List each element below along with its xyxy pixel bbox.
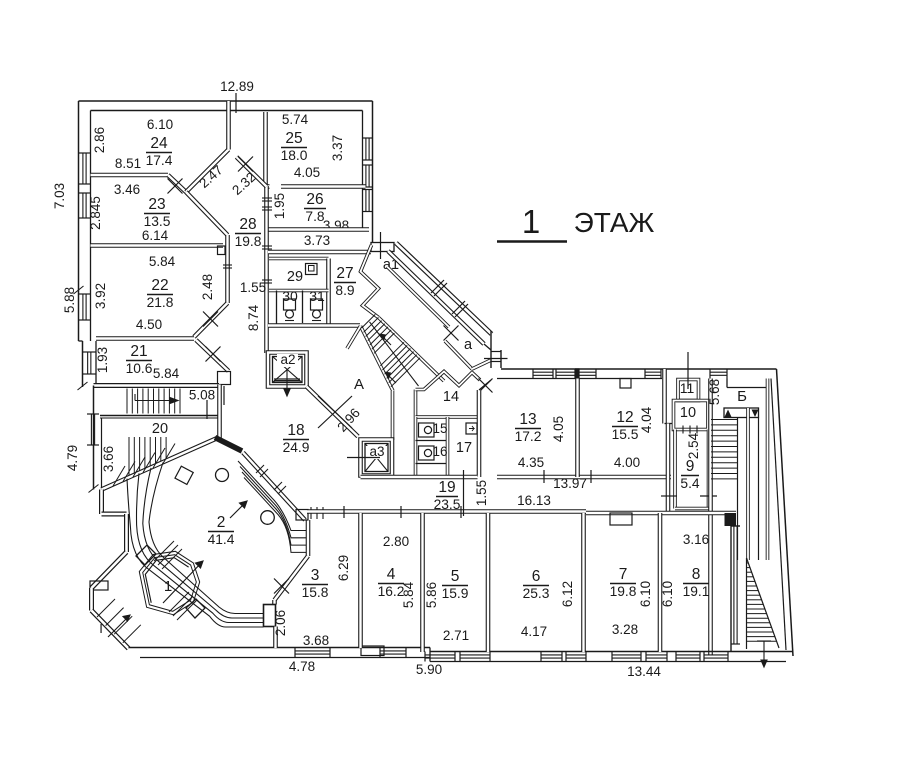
svg-text:5.74: 5.74 [282,112,309,127]
svg-text:3.46: 3.46 [114,182,140,197]
svg-text:5.84: 5.84 [153,366,180,381]
svg-text:18.0: 18.0 [281,148,308,163]
svg-text:4.00: 4.00 [614,455,640,470]
svg-text:4.05: 4.05 [294,165,320,180]
svg-text:13.44: 13.44 [627,664,661,679]
svg-text:28: 28 [239,216,256,233]
svg-text:17: 17 [456,440,472,456]
svg-text:4.17: 4.17 [521,624,547,639]
svg-text:1.55: 1.55 [240,280,266,295]
svg-text:8.74: 8.74 [246,304,261,331]
svg-text:3.92: 3.92 [93,283,108,309]
svg-text:17.4: 17.4 [146,153,173,168]
svg-text:26: 26 [306,191,323,208]
svg-text:15.8: 15.8 [302,585,329,600]
svg-text:13.97: 13.97 [553,476,587,491]
svg-text:9: 9 [686,458,695,475]
svg-text:30: 30 [282,288,298,304]
svg-text:25: 25 [285,130,302,147]
svg-text:6.10: 6.10 [147,117,173,132]
svg-text:2.80: 2.80 [383,534,409,549]
svg-text:2.86: 2.86 [92,127,107,153]
svg-text:31: 31 [309,288,325,304]
svg-text:15.5: 15.5 [612,427,639,442]
svg-text:10: 10 [680,405,696,421]
svg-text:17.2: 17.2 [515,429,542,444]
svg-text:а: а [464,337,473,353]
svg-text:3: 3 [311,567,320,584]
svg-text:6.10: 6.10 [660,581,675,607]
svg-text:10.6: 10.6 [126,361,153,376]
svg-text:19.1: 19.1 [683,584,710,599]
svg-text:19.8: 19.8 [235,234,262,249]
svg-text:11: 11 [680,380,695,396]
svg-text:2.06: 2.06 [273,610,288,636]
svg-text:21: 21 [130,343,147,360]
svg-text:15: 15 [432,421,447,436]
svg-text:18: 18 [287,422,304,439]
svg-text:13: 13 [519,411,536,428]
svg-text:1: 1 [522,203,540,240]
svg-text:19: 19 [438,479,455,496]
svg-text:7: 7 [619,566,628,583]
svg-text:ЭТАЖ: ЭТАЖ [574,207,655,238]
svg-text:8.51: 8.51 [115,156,141,171]
svg-text:6.14: 6.14 [142,228,169,243]
svg-text:21.8: 21.8 [147,295,174,310]
svg-text:15.9: 15.9 [442,586,469,601]
svg-text:4.35: 4.35 [518,455,544,470]
svg-text:6.10: 6.10 [638,581,653,607]
svg-text:4.04: 4.04 [639,406,654,433]
svg-text:5.86: 5.86 [424,582,439,608]
svg-text:8.9: 8.9 [335,283,355,298]
svg-text:2: 2 [217,514,226,531]
svg-text:3.73: 3.73 [304,233,330,248]
svg-text:3.16: 3.16 [683,532,709,547]
svg-text:6.29: 6.29 [336,555,351,581]
svg-text:5: 5 [451,568,460,585]
svg-text:6.12: 6.12 [560,581,575,607]
svg-text:13.5: 13.5 [144,214,171,229]
svg-text:А: А [354,376,364,393]
svg-text:5.84: 5.84 [149,254,176,269]
svg-text:Б: Б [737,388,747,405]
svg-text:6: 6 [532,568,541,585]
svg-text:41.4: 41.4 [208,532,235,547]
svg-text:1.95: 1.95 [272,193,287,219]
svg-text:4.79: 4.79 [65,445,80,471]
svg-text:5.4: 5.4 [680,476,700,491]
svg-text:4.78: 4.78 [289,659,315,674]
svg-text:5.08: 5.08 [189,388,215,403]
svg-text:12.89: 12.89 [220,79,254,94]
svg-text:25.3: 25.3 [523,586,550,601]
svg-text:7.03: 7.03 [52,183,67,209]
svg-text:1.93: 1.93 [95,347,110,373]
svg-text:4.05: 4.05 [551,416,566,442]
svg-text:8: 8 [692,566,701,583]
svg-text:5.68: 5.68 [707,379,722,405]
svg-text:23: 23 [148,196,165,213]
svg-text:24.9: 24.9 [283,440,310,455]
svg-text:23.5: 23.5 [434,497,461,512]
svg-text:2.845: 2.845 [88,196,103,230]
svg-text:5.90: 5.90 [416,662,442,677]
svg-text:19.8: 19.8 [610,584,637,599]
svg-text:2.54: 2.54 [686,432,701,459]
svg-text:16: 16 [432,444,447,459]
svg-text:3.37: 3.37 [330,135,345,161]
svg-text:27: 27 [336,265,353,282]
svg-text:12: 12 [616,409,633,426]
svg-text:4.50: 4.50 [136,317,162,332]
svg-text:2.48: 2.48 [200,274,215,300]
svg-text:4: 4 [387,566,396,583]
svg-text:16.13: 16.13 [517,493,551,508]
svg-text:14: 14 [443,389,459,405]
svg-text:5.88: 5.88 [62,287,77,313]
svg-text:а2: а2 [280,352,295,367]
svg-text:5.84: 5.84 [401,581,416,608]
svg-text:3.68: 3.68 [303,633,329,648]
svg-text:1.55: 1.55 [474,480,489,506]
svg-text:3.28: 3.28 [612,622,638,637]
svg-text:а3: а3 [369,444,384,459]
svg-text:2.71: 2.71 [443,628,469,643]
svg-text:3.66: 3.66 [101,446,116,472]
svg-text:I: I [99,621,103,636]
svg-text:29: 29 [287,269,303,285]
svg-text:22: 22 [151,277,168,294]
svg-text:24: 24 [150,135,168,152]
svg-text:20: 20 [152,421,168,437]
